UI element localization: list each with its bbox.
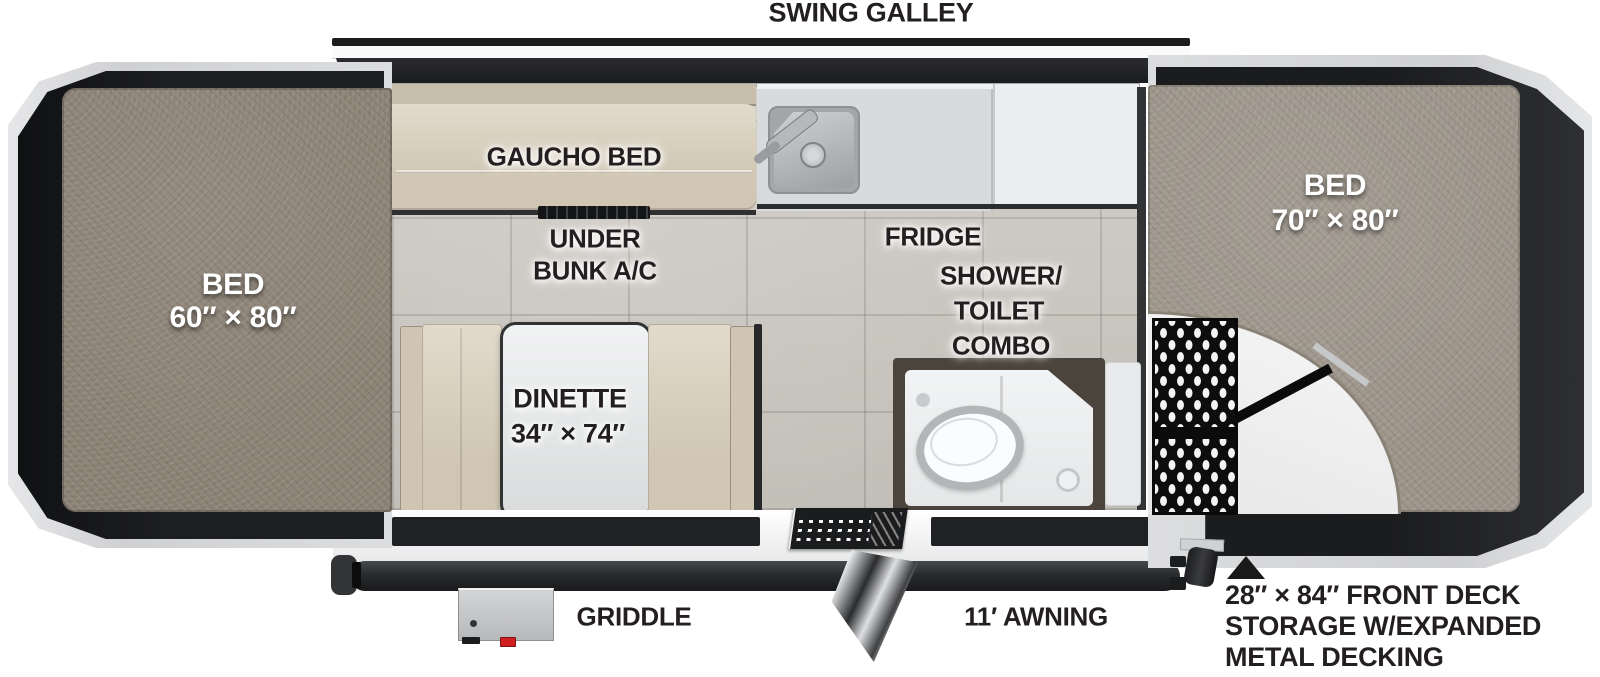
dinette-right-backrest — [730, 326, 756, 520]
swing-galley-label: SWING GALLEY — [769, 0, 974, 29]
right-bed-slideout: BED 70″ × 80″ — [1148, 55, 1592, 568]
gaucho-bed-backrail — [392, 84, 756, 106]
sink-drain-knob — [800, 142, 826, 168]
bottom-window-right — [931, 517, 1151, 546]
deck-note-line3: METAL DECKING — [1225, 642, 1541, 673]
expanded-metal-deck — [1152, 318, 1238, 515]
galley-wing-band — [336, 58, 1184, 83]
deck-note: 28″ × 84″ FRONT DECK STORAGE W/EXPANDED … — [1225, 580, 1541, 673]
floorplan-canvas: SWING GALLEY — [0, 0, 1600, 677]
dinette-left-backrest — [400, 326, 424, 520]
right-bed-size-label: 70″ × 80″ — [1272, 204, 1399, 238]
griddle-label: GRIDDLE — [577, 602, 692, 633]
dinette-size-label: 34″ × 74″ — [511, 419, 625, 450]
awning-roller — [350, 561, 1180, 591]
awning-roller-bolt — [352, 562, 361, 588]
under-bunk-ac-label-line2: BUNK A/C — [533, 256, 657, 287]
dinette-right-frame — [754, 324, 762, 520]
left-bed-label: BED — [202, 268, 264, 302]
dinette-right-bench — [648, 324, 732, 522]
deck-note-line1: 28″ × 84″ FRONT DECK — [1225, 580, 1541, 611]
shower-drain — [1056, 468, 1080, 492]
deck-pointer-triangle — [1227, 556, 1265, 579]
toilet-flush-knob — [916, 393, 930, 407]
awning-bracket-top — [1170, 556, 1186, 567]
fridge-cabinet — [993, 84, 1139, 206]
dinette-label: DINETTE — [513, 384, 626, 415]
galley-wing-trim — [332, 46, 1190, 59]
griddle-foot — [462, 637, 480, 644]
shower-side-cabinet — [1105, 362, 1141, 506]
deck-frame-crossbar — [1152, 427, 1238, 439]
shower-toilet-label-line2: TOILET — [954, 296, 1044, 327]
galley-wing-edge — [332, 38, 1190, 46]
dinette-left-bench-seam — [460, 328, 462, 516]
entry-step-perforations — [796, 514, 872, 544]
left-bed-size-label: 60″ × 80″ — [170, 301, 297, 335]
fridge-label: FRIDGE — [885, 222, 981, 253]
griddle-red-knob — [500, 637, 516, 647]
entry-step-streaks — [870, 512, 903, 546]
shower-toilet-label-line3: COMBO — [952, 331, 1050, 362]
shower-toilet-label-line1: SHOWER/ — [940, 261, 1062, 292]
deck-caster-wheel — [1183, 546, 1219, 589]
bottom-window-left — [392, 517, 760, 546]
under-counter-shadow — [757, 204, 1137, 209]
dinette-left-bench — [422, 324, 502, 522]
griddle-unit — [458, 588, 554, 641]
gaucho-bed-label: GAUCHO BED — [487, 142, 662, 173]
right-bed-label: BED — [1304, 169, 1366, 203]
under-bunk-ac-label-line1: UNDER — [550, 224, 641, 255]
awning-label: 11′ AWNING — [964, 602, 1108, 633]
under-bunk-ac-vent — [538, 206, 650, 219]
griddle-knob-dot — [470, 620, 477, 627]
deck-note-line2: STORAGE W/EXPANDED — [1225, 611, 1541, 642]
left-bed-slideout: BED 60″ × 80″ — [8, 62, 392, 548]
